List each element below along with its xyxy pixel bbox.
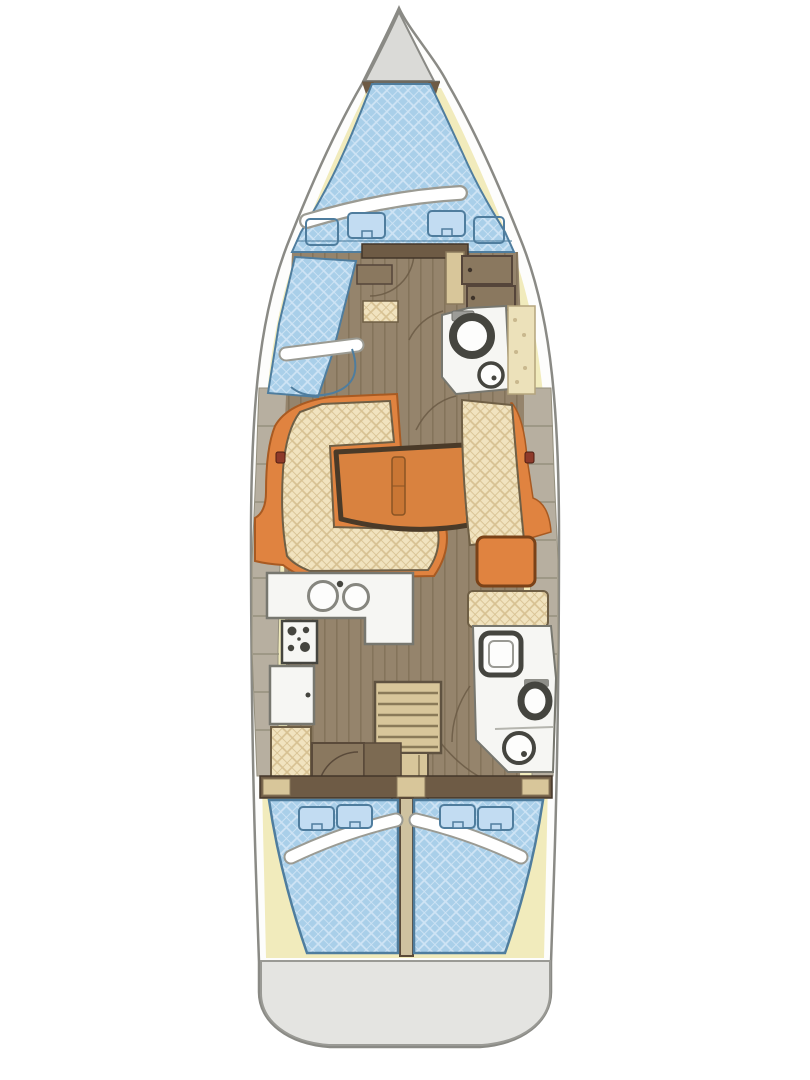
aft-bulkhead-center-passage <box>397 777 425 797</box>
aft-pillow-port-1-notch <box>312 824 322 830</box>
hull-fitting-port <box>276 452 285 463</box>
shower-tray <box>481 633 521 675</box>
burner-knob <box>297 637 301 641</box>
floor-plan-canvas <box>0 0 810 1080</box>
floor-plan-drawing <box>0 0 810 1080</box>
bow-pillow-starboard-notch <box>442 229 452 236</box>
forward-sink <box>479 363 503 387</box>
galley-sink-right <box>344 585 369 610</box>
aft-bulkhead <box>260 776 552 798</box>
aft-sink-drain <box>521 751 527 757</box>
galley-faucet <box>337 581 343 587</box>
burner-1 <box>288 627 297 636</box>
fridge-handle <box>306 693 311 698</box>
burner-2 <box>303 627 309 633</box>
aft-pillow-port-2-notch <box>350 822 360 828</box>
burner-3 <box>288 645 294 651</box>
aft-pillow-starboard-2-notch <box>491 824 501 830</box>
burner-4 <box>300 642 310 652</box>
hull-shelf <box>508 306 535 394</box>
aft-sink <box>504 733 534 763</box>
nav-seat <box>468 591 548 627</box>
aft-bulkhead-locker-port <box>263 779 290 795</box>
hull-fitting-starboard <box>525 452 534 463</box>
forward-toilet <box>453 317 491 355</box>
stern-platform <box>261 961 550 1045</box>
forward-sink-drain <box>492 376 497 381</box>
bow-pillow-port-notch <box>362 231 372 238</box>
galley-sink-left <box>309 582 338 611</box>
aft-bulkhead-locker-starboard <box>522 779 549 795</box>
aft-head <box>473 626 556 772</box>
aft-toilet <box>521 685 549 717</box>
wardrobe-handle-2 <box>471 296 475 300</box>
forward-head <box>442 306 535 394</box>
dining-table <box>336 445 469 529</box>
step-box <box>357 265 392 284</box>
stove <box>282 621 317 663</box>
aft-pillow-starboard-1-notch <box>453 822 463 828</box>
aft-cabins <box>269 798 543 956</box>
corridor-cushion <box>363 301 398 322</box>
chart-table <box>477 537 535 586</box>
wardrobe-handle-1 <box>468 268 472 272</box>
